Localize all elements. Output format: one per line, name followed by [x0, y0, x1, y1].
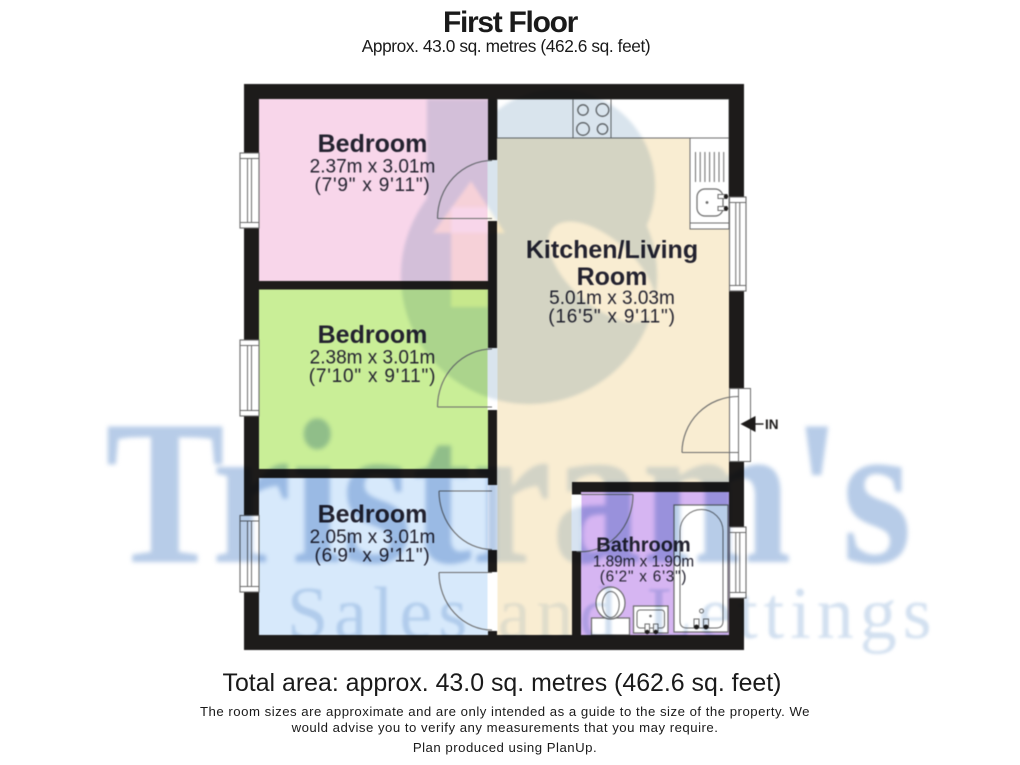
- svg-text:Bedroom: Bedroom: [318, 130, 428, 158]
- svg-text:(7'9" x 9'11"): (7'9" x 9'11"): [314, 175, 430, 196]
- svg-text:Sales and Lettings: Sales and Lettings: [287, 573, 938, 655]
